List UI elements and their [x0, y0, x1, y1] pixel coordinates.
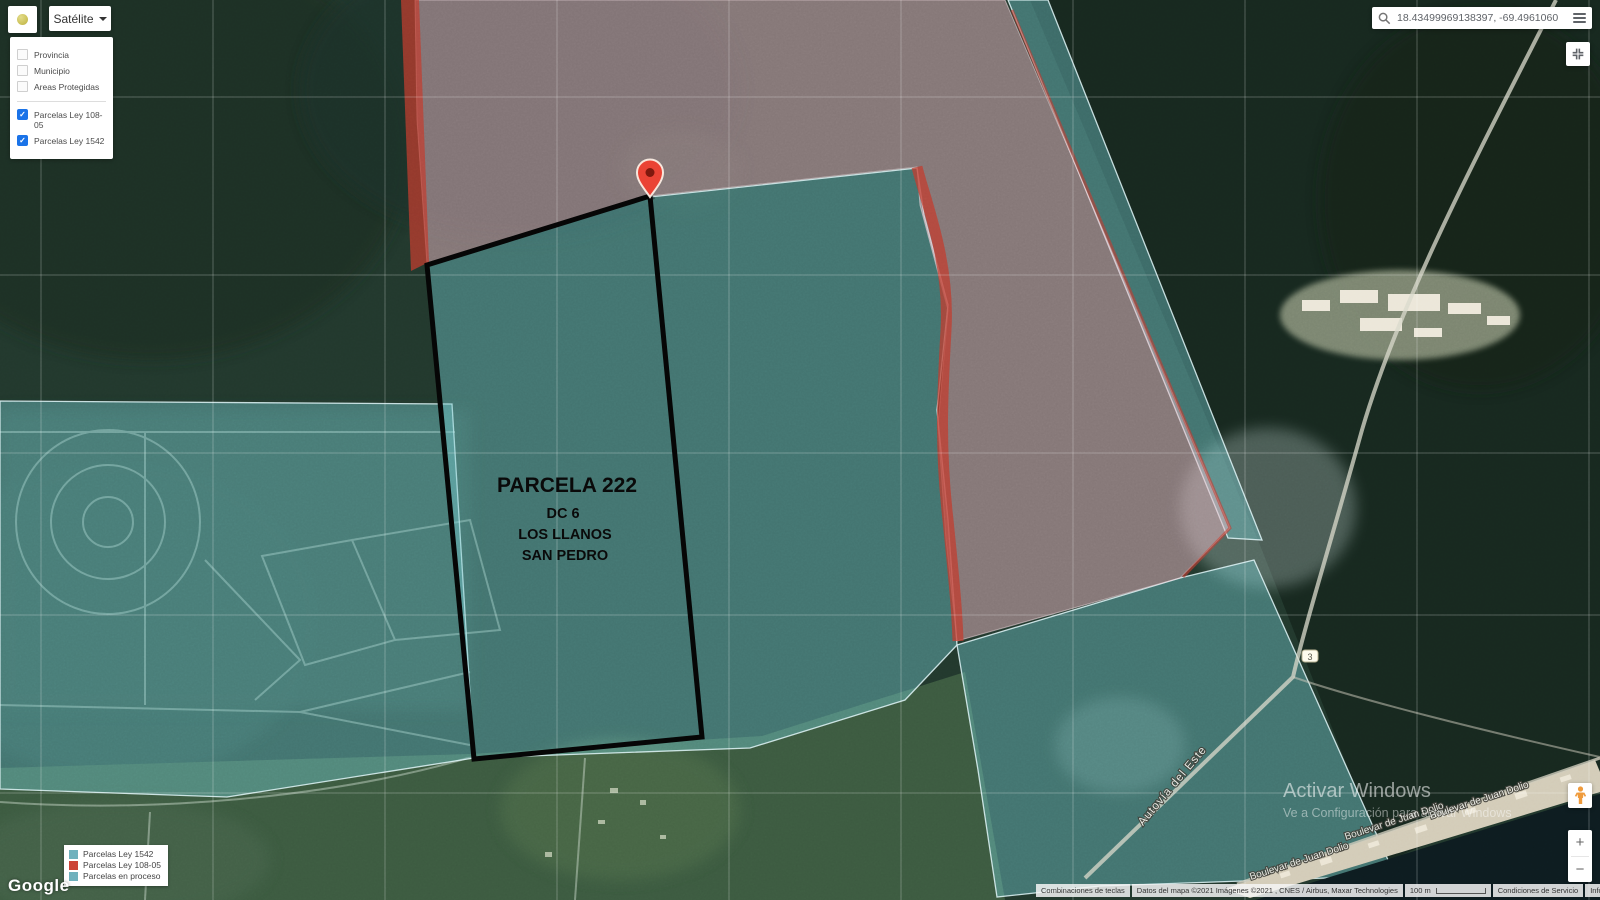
map-type-label: Satélite — [53, 12, 93, 26]
parcel-line-llanos: LOS LLANOS — [518, 527, 612, 543]
checkbox-checked[interactable]: ✓ — [17, 109, 28, 120]
legend-item-ley-108-05: Parcelas Ley 108-05 — [69, 860, 161, 870]
layer-option-parcelas-1542[interactable]: ✓ Parcelas Ley 1542 — [17, 135, 106, 146]
search-bar[interactable]: 18.43499969138397, -69.4961060 — [1372, 7, 1592, 29]
checkbox-checked[interactable]: ✓ — [17, 135, 28, 146]
scale-ruler — [1436, 888, 1486, 894]
red-swatch — [69, 861, 78, 870]
zoom-control: + − — [1568, 830, 1592, 882]
legend-item-en-proceso: Parcelas en proceso — [69, 871, 161, 881]
route-shield: 3 — [1302, 650, 1318, 662]
layers-toggle-button[interactable] — [8, 6, 37, 33]
scale-label: 100 m — [1410, 886, 1431, 895]
search-input[interactable]: 18.43499969138397, -69.4961060 — [1397, 12, 1569, 24]
layer-option-parcelas-108-05[interactable]: ✓ Parcelas Ley 108-05 — [17, 109, 106, 130]
checkbox-unchecked[interactable] — [17, 65, 28, 76]
svg-text:3: 3 — [1307, 652, 1312, 662]
layer-dot-icon — [17, 14, 28, 25]
report-map-error-link[interactable]: Informar un error en el mapa — [1585, 884, 1600, 897]
layer-option-areas-protegidas[interactable]: Areas Protegidas — [17, 81, 106, 92]
map-type-satellite-button[interactable]: Satélite — [49, 6, 111, 31]
pegman-icon — [1574, 786, 1587, 805]
teal-swatch — [69, 872, 78, 881]
panel-divider — [17, 101, 106, 102]
teal-swatch — [69, 850, 78, 859]
noise-texture — [0, 0, 1600, 900]
keyboard-shortcuts-link[interactable]: Combinaciones de teclas — [1036, 884, 1130, 897]
satellite-map-canvas[interactable]: PARCELA 222 DC 6 LOS LLANOS SAN PEDRO Au… — [0, 0, 1600, 900]
scale-control: 100 m — [1405, 884, 1491, 897]
parcel-title: PARCELA 222 — [497, 474, 637, 497]
parcel-line-sanpedro: SAN PEDRO — [522, 548, 608, 564]
pegman-button[interactable] — [1568, 783, 1592, 808]
fullscreen-toggle-button[interactable] — [1566, 42, 1590, 66]
terms-of-service-link[interactable]: Condiciones de Servicio — [1493, 884, 1583, 897]
menu-icon[interactable] — [1573, 13, 1586, 23]
zoom-out-button[interactable]: − — [1568, 857, 1592, 883]
search-icon[interactable] — [1378, 12, 1391, 25]
chevron-down-icon — [99, 17, 107, 25]
fullscreen-exit-icon — [1570, 46, 1586, 62]
checkbox-unchecked[interactable] — [17, 81, 28, 92]
layer-option-provincia[interactable]: Provincia — [17, 49, 106, 60]
layers-panel: Provincia Municipio Areas Protegidas ✓ P… — [10, 37, 113, 159]
google-logo: Google — [8, 876, 70, 896]
map-application: PARCELA 222 DC 6 LOS LLANOS SAN PEDRO Au… — [0, 0, 1600, 900]
map-data-attribution: Datos del mapa ©2021 Imágenes ©2021 , CN… — [1132, 884, 1403, 897]
map-legend: Parcelas Ley 1542 Parcelas Ley 108-05 Pa… — [64, 845, 168, 886]
zoom-in-button[interactable]: + — [1568, 830, 1592, 856]
legend-item-ley-1542: Parcelas Ley 1542 — [69, 849, 161, 859]
checkbox-unchecked[interactable] — [17, 49, 28, 60]
attribution-bar: Combinaciones de teclas Datos del mapa ©… — [1036, 884, 1600, 897]
parcel-line-dc: DC 6 — [546, 506, 579, 522]
layer-option-municipio[interactable]: Municipio — [17, 65, 106, 76]
